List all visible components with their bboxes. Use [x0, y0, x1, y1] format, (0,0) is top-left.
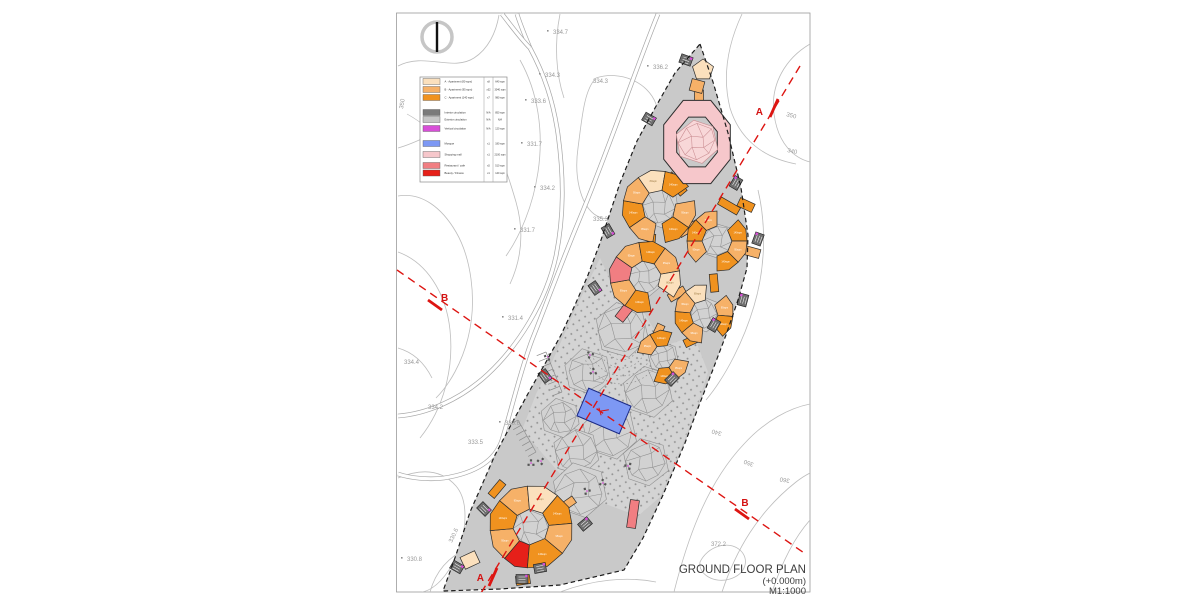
building-area-label: 80sqm — [666, 281, 673, 284]
building-area-label: 140sqm — [635, 301, 644, 304]
contour-label: 330.8 — [407, 557, 423, 563]
legend-swatch — [423, 152, 440, 158]
building-area-label: 95sqm — [663, 262, 670, 265]
contour-label: 336.2 — [653, 65, 669, 71]
legend-label: Beauty / Fitness — [445, 171, 465, 175]
vertical-circulation-mark — [525, 575, 527, 577]
building-area-label: 95sqm — [556, 535, 563, 538]
spot-elevation-dot — [401, 557, 403, 559]
legend-qty: N/A — [486, 119, 491, 122]
building-area-label: 95sqm — [681, 212, 688, 215]
building-area-label: 95sqm — [734, 249, 741, 252]
contour-label: 334.4 — [404, 360, 420, 366]
contour-label: 330.6 — [505, 421, 521, 427]
building-cluster: 140sqm95sqm140sqm95sqm140sqm95sqm — [687, 211, 747, 271]
building-area-label: 95sqm — [675, 367, 682, 370]
building-area-label: 140sqm — [646, 251, 655, 254]
legend-label: B · Apartment (95 sqm) — [445, 88, 473, 92]
legend-swatch — [423, 79, 440, 85]
legend-label: C · Apartment (140 sqm) — [445, 96, 475, 100]
legend-area: 510 sqm — [495, 165, 505, 168]
contour-label: 331.7 — [527, 142, 543, 148]
contour-label: 335.3 — [593, 217, 609, 223]
building-area-label: 140sqm — [734, 231, 743, 234]
building-cluster: 95sqm140sqm95sqm80sqm140sqm95sqm140sqm — [490, 486, 572, 568]
section-marker-b-right: B — [741, 498, 748, 509]
building-area-label: 95sqm — [721, 306, 728, 309]
stair-core — [516, 575, 528, 584]
legend-area: 120 sqm — [495, 128, 505, 131]
building-area-label: 140sqm — [553, 512, 562, 515]
section-marker-a-top: A — [756, 107, 763, 118]
spot-elevation-dot — [547, 30, 549, 32]
legend-swatch — [423, 141, 440, 147]
legend-swatch — [423, 87, 440, 93]
building-area-label: 140sqm — [721, 261, 730, 264]
contour-label: 372.2 — [711, 542, 727, 548]
contour-label: 334.7 — [553, 30, 569, 36]
section-marker-b-left: B — [441, 293, 448, 304]
contour-label: 334.2 — [540, 186, 556, 192]
legend-label: Restaurant / cafe — [445, 164, 466, 168]
building-area-label: 140sqm — [657, 337, 666, 340]
legend-label: Exterior circulation — [445, 118, 468, 122]
drawing-sheet-page: { "title": { "line1": "GROUND FLOOR PLAN… — [0, 0, 1200, 600]
legend-label: Shopping mall — [445, 153, 462, 157]
legend-label: Vertical circulation — [445, 127, 467, 131]
legend-swatch — [423, 95, 440, 101]
legend-qty: x32 — [486, 89, 491, 92]
legend-label: A · Apartment (80 sqm) — [445, 80, 473, 84]
legend-area: 140 sqm — [495, 172, 505, 175]
contour-label: 334.3 — [545, 73, 561, 79]
legend-area: 3040 sqm — [495, 89, 506, 92]
building-area-label: 95sqm — [641, 228, 648, 231]
legend-swatch — [423, 163, 440, 169]
legend-area: N/A — [498, 119, 503, 122]
building-area-label: 95sqm — [620, 290, 627, 293]
building-area-label: 95sqm — [514, 500, 521, 503]
stair-core — [533, 563, 546, 574]
contour-label: 334.2 — [428, 405, 444, 411]
corridor-building — [709, 274, 719, 293]
drawing-title: GROUND FLOOR PLAN — [679, 564, 806, 576]
building-area-label: 140sqm — [669, 228, 678, 231]
building-area-label: 95sqm — [681, 303, 688, 306]
legend-swatch — [423, 110, 440, 116]
building-area-label: 140sqm — [538, 553, 547, 556]
vertical-circulation-mark — [542, 563, 545, 566]
contour-label: 333.6 — [531, 99, 547, 105]
section-marker-a-bottom: A — [477, 573, 484, 584]
site-plan-svg: 95sqm140sqm95sqm80sqm140sqm95sqm140sqm14… — [0, 0, 1200, 600]
spot-elevation-dot — [499, 421, 501, 423]
building-area-label: 140sqm — [679, 319, 688, 322]
drawing-scale: M1:1000 — [769, 586, 806, 597]
building-area-label: 95sqm — [644, 345, 651, 348]
spot-elevation-dot — [525, 99, 527, 101]
legend-qty: N/A — [486, 128, 491, 131]
spot-elevation-dot — [521, 142, 523, 144]
shopping-mall-ring — [664, 100, 731, 183]
legend-area: 980 sqm — [495, 97, 505, 100]
spot-elevation-dot — [539, 73, 541, 75]
building-area-label: 80sqm — [694, 292, 701, 295]
building-area-label: 140sqm — [499, 517, 508, 520]
building-area-label: 95sqm — [633, 192, 640, 195]
building-area-label: 95sqm — [628, 254, 635, 257]
spot-elevation-dot — [534, 186, 536, 188]
contour-label: 331.7 — [520, 228, 536, 234]
legend-label: Interior circulation — [445, 111, 467, 115]
legend-swatch — [423, 170, 440, 176]
legend-area: 640 sqm — [495, 81, 505, 84]
building-area-label: 140sqm — [669, 184, 678, 187]
building-area-label: 95sqm — [501, 540, 508, 543]
spot-elevation-dot — [514, 228, 516, 230]
contour-label: 333.5 — [468, 440, 484, 446]
legend: A · Apartment (80 sqm)x8640 sqmB · Apart… — [420, 77, 507, 182]
building-area-label: 95sqm — [690, 332, 697, 335]
spot-elevation-dot — [502, 316, 504, 318]
building-area-label: 95sqm — [693, 249, 700, 252]
spot-elevation-dot — [647, 65, 649, 67]
legend-area: 180 sqm — [495, 143, 505, 146]
building-area-label: 80sqm — [650, 180, 657, 183]
legend-qty: N/A — [486, 112, 491, 115]
legend-swatch — [423, 126, 440, 132]
contour-label: 331.4 — [508, 316, 524, 322]
building-area-label: 140sqm — [629, 212, 638, 215]
legend-area: 850 sqm — [495, 112, 505, 115]
legend-label: Mosque — [445, 142, 455, 146]
legend-area: 2100 sqm — [495, 154, 506, 157]
contour-label: 334.3 — [593, 79, 609, 85]
legend-swatch — [423, 117, 440, 123]
